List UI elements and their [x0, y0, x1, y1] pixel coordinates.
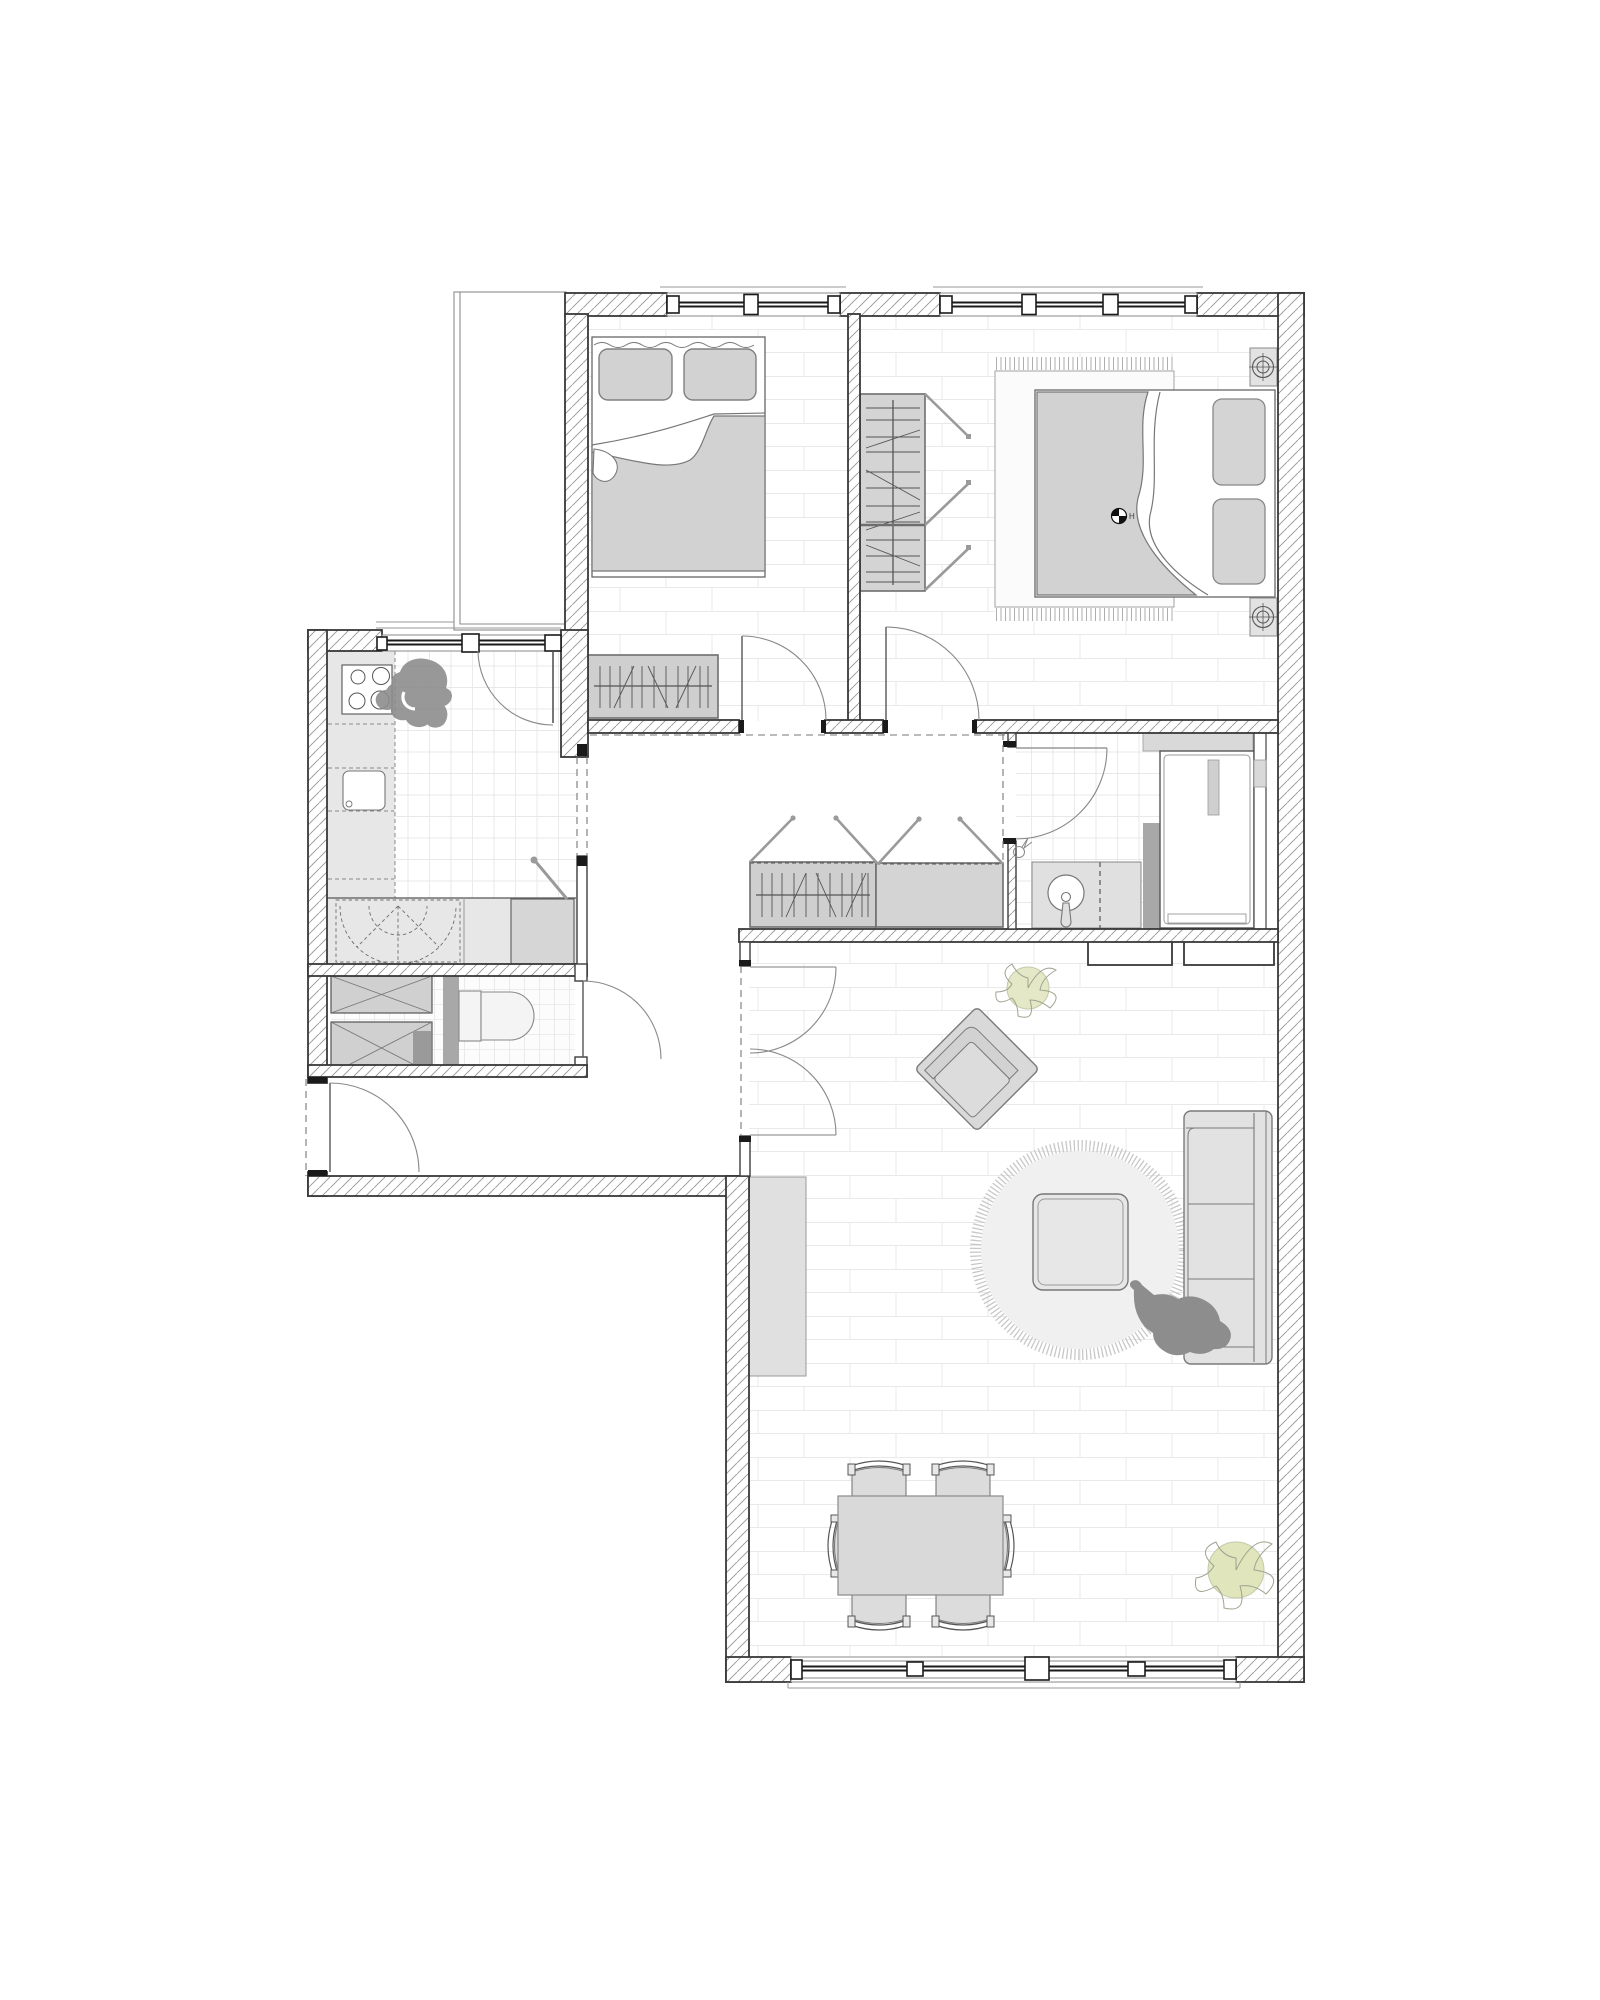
svg-text:H: H: [1129, 512, 1135, 521]
